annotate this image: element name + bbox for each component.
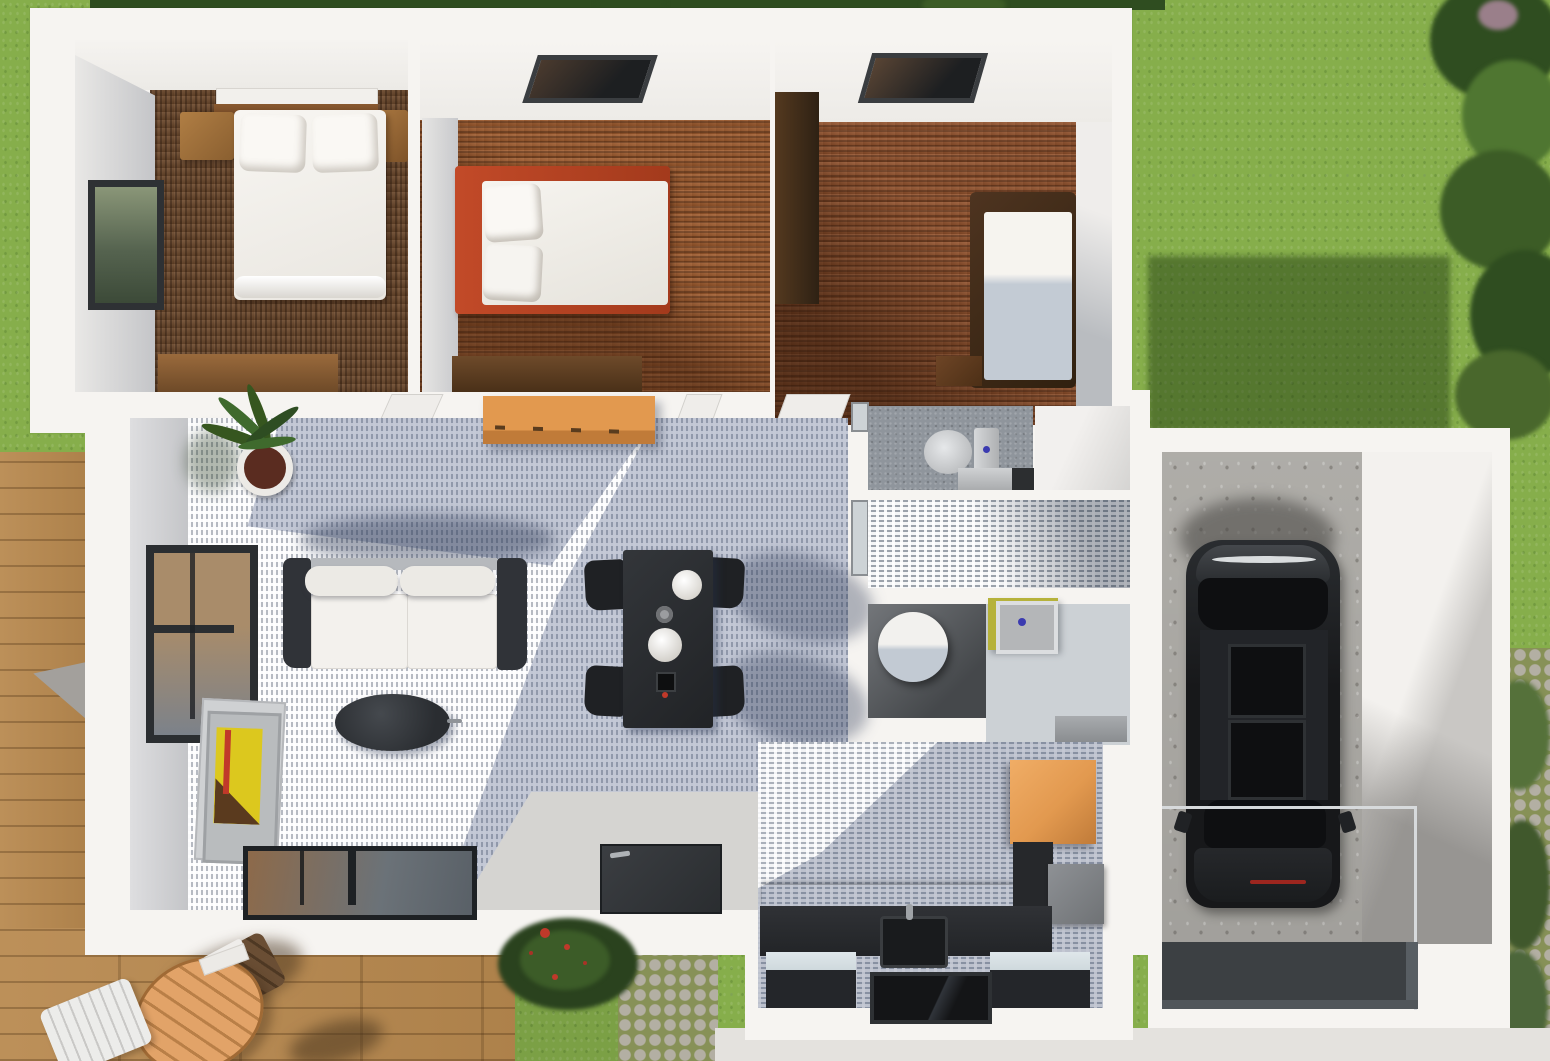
island-unit-left-top <box>766 952 856 970</box>
floorplan-render <box>0 0 1550 1061</box>
cooktop-glass <box>870 972 992 1024</box>
plate <box>672 570 702 600</box>
sofa-back-cushion <box>305 566 398 596</box>
plate <box>648 628 682 662</box>
sofa-back-cushion <box>400 566 495 596</box>
ramp-edge-right <box>1406 942 1418 1008</box>
bedroom3-mattress <box>984 212 1072 380</box>
sideboard <box>483 396 655 444</box>
bedroom2-skylight <box>522 55 658 103</box>
bedroom2-dresser <box>452 356 642 392</box>
washbasin-drain <box>1018 618 1026 626</box>
nightstand-left <box>180 112 234 160</box>
hall-door-leaf <box>380 394 443 419</box>
dining-chair <box>584 665 627 717</box>
driveway-ramp <box>1162 942 1418 1008</box>
kitchen-sink <box>880 916 948 968</box>
car-sunroof-pane <box>1228 720 1306 800</box>
hall-wall-window <box>851 402 869 432</box>
candle-red-dot <box>662 692 668 698</box>
bedroom3-wall-face-right <box>1076 122 1112 425</box>
bedroom1-pillow <box>311 113 379 173</box>
shrub-red-flowers <box>540 928 550 938</box>
dining-wall-window <box>851 500 869 576</box>
car-sunroof-pane <box>1228 644 1306 718</box>
wc-wall-face-right <box>1035 406 1130 490</box>
cistern-button <box>983 446 990 453</box>
kitchen-tall-cabinet <box>1010 760 1096 844</box>
bedroom3-nightstand <box>936 356 982 386</box>
bedroom2-pillow <box>483 244 544 303</box>
bedroom1-blanket-roll <box>234 276 386 298</box>
bedroom3-skylight <box>858 53 988 103</box>
hall-door-leaf <box>777 394 850 419</box>
washbasin <box>996 601 1058 654</box>
sofa-seat <box>407 594 497 669</box>
sofa-arm-right <box>497 558 527 670</box>
island-unit-right-top <box>990 952 1090 970</box>
cup <box>656 606 673 623</box>
water-heater-cylinder <box>878 612 948 682</box>
car-trunk <box>1194 848 1332 902</box>
bath-cabinet <box>1055 716 1127 742</box>
garage-wall-face-shade <box>1362 452 1492 944</box>
coffee-table-handle <box>447 719 462 723</box>
bedroom2-wall-face-left <box>422 118 458 392</box>
flowering-shrub-light <box>520 930 610 990</box>
wc-niche <box>1012 468 1034 490</box>
kitchen-faucet <box>906 904 913 920</box>
hedge-bush <box>1455 350 1550 440</box>
kitchen-appliance <box>1048 864 1104 924</box>
car-taillight <box>1250 880 1306 884</box>
kitchen-orange-bench <box>762 885 1014 907</box>
wc-shelf <box>958 468 1012 490</box>
coffee-table <box>335 694 450 751</box>
bedroom1-pillow <box>239 113 307 173</box>
bedroom3-wardrobe <box>775 92 819 304</box>
sliding-door-mullion <box>348 851 356 905</box>
sofa-seat <box>311 594 408 669</box>
hedge-flowers <box>1478 0 1518 30</box>
kitchen-black-cabinet <box>1013 842 1053 908</box>
sliding-door-mullion <box>300 851 304 905</box>
glass-railing-top <box>1162 806 1416 809</box>
bedroom2-pillow <box>482 183 544 243</box>
bedroom1-window <box>88 180 164 310</box>
car-silver-trim <box>1212 556 1316 563</box>
candle-holder <box>656 672 676 692</box>
sofa-shadow <box>300 515 555 563</box>
shower-shadow <box>868 500 1130 588</box>
car-windshield <box>1198 578 1328 630</box>
ramp-edge-front <box>1162 1000 1418 1009</box>
living-window-mullion-v <box>190 553 195 719</box>
dining-chair <box>584 559 627 611</box>
sliding-glass-door <box>243 846 477 920</box>
lawn-shadow-band <box>1148 256 1450 432</box>
